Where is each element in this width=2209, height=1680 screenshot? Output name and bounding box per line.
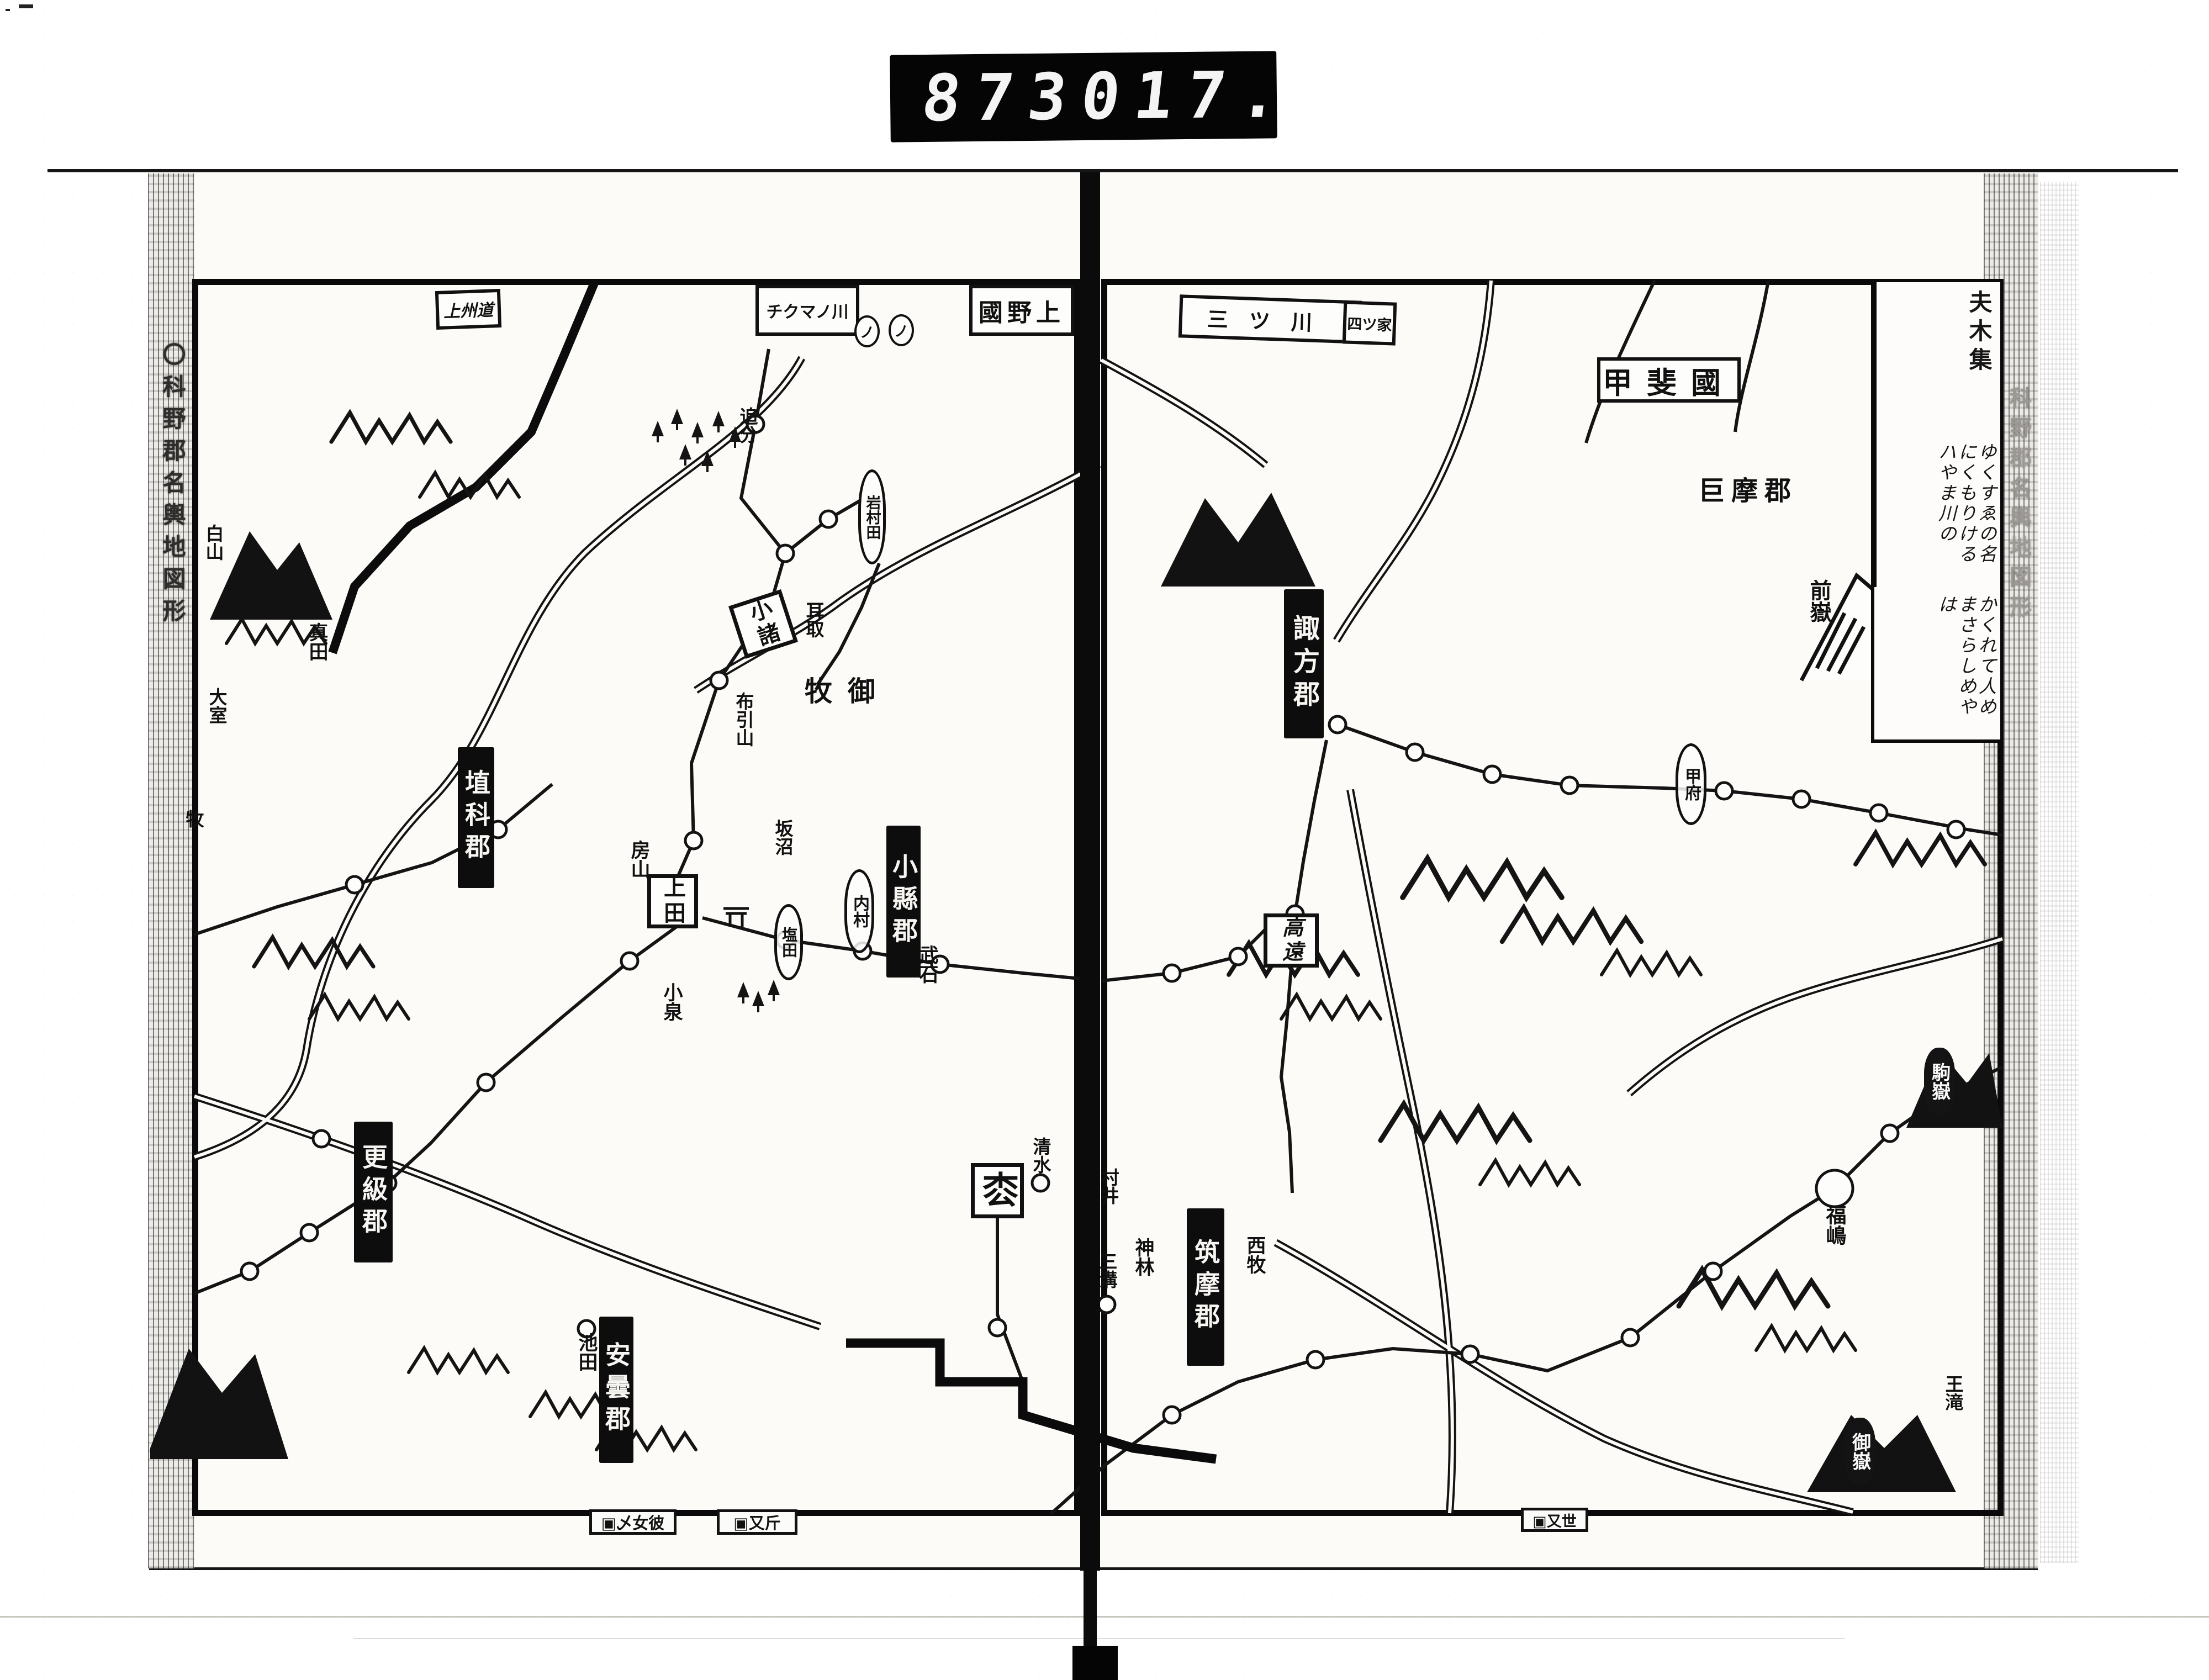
- map-label: 小泉: [660, 971, 683, 1033]
- map-label: 小諸: [728, 589, 798, 659]
- map-label: 上州道: [435, 289, 501, 330]
- map-label: 牧: [182, 802, 205, 835]
- map-labels: 埴科郡更級郡安曇郡小縣郡筑摩郡諏方郡上田小諸枩高遠甲斐國國野上チクマノ川三ツ川四…: [0, 0, 2209, 1680]
- poem-line-1: ゆくすゑの名にくもりけるハやま川の: [1874, 435, 2000, 587]
- map-label: 白山: [202, 513, 225, 572]
- map-label: 更級郡: [354, 1122, 393, 1262]
- map-label: ノ: [854, 315, 880, 347]
- map-label: 國野上: [969, 285, 1074, 336]
- map-label: ▣乄女彼: [589, 1509, 677, 1535]
- map-label: 枩: [971, 1163, 1024, 1218]
- poem-column: 夫木集 ゆくすゑの名にくもりけるハやま川の かくれて人めまさらしめやは: [1871, 279, 2004, 743]
- map-label: 清水: [1029, 1127, 1052, 1184]
- map-label: 耳取: [802, 590, 825, 649]
- map-label: 筑摩郡: [1187, 1208, 1224, 1366]
- binding-gutter: [1080, 172, 1100, 1571]
- edge-title-left: 〇科野郡名輿地図形: [156, 342, 189, 631]
- map-label: 四ツ家: [1343, 300, 1397, 345]
- map-label: 布引山: [732, 677, 755, 761]
- map-label: 甲斐國: [1597, 357, 1741, 403]
- binding-gutter-foot: [1072, 1646, 1118, 1680]
- map-label: 武石: [916, 933, 939, 995]
- map-label: 安曇郡: [599, 1317, 633, 1463]
- map-label: 坂沼: [771, 807, 794, 868]
- map-label: 牧御: [798, 672, 897, 706]
- map-label: 神林: [1132, 1227, 1155, 1287]
- map-label: 埴科郡: [458, 747, 494, 888]
- map-label: 高遠: [1264, 913, 1319, 968]
- map-label: ▣又世: [1521, 1508, 1588, 1532]
- map-label: 諏方郡: [1284, 589, 1324, 738]
- map-label: 王滝: [1941, 1364, 1964, 1422]
- poem-title: 夫木集: [1874, 282, 2000, 435]
- map-label: 内村: [844, 869, 874, 953]
- map-label: 上田: [647, 874, 698, 928]
- map-label: 甲府: [1676, 743, 1706, 825]
- map-label: 村井: [1097, 1158, 1120, 1215]
- map-label: 福嶋: [1822, 1192, 1846, 1258]
- map-label: 西牧: [1243, 1224, 1266, 1285]
- poem-line-2: かくれて人めまさらしめやは: [1874, 587, 2000, 739]
- map-label: 大室: [205, 676, 228, 736]
- map-label: 房山: [627, 828, 651, 890]
- map-label: チクマノ川: [755, 285, 859, 336]
- edge-title-right: 科野郡名輿地図形: [2002, 387, 2034, 625]
- map-label: 真田: [305, 611, 329, 672]
- binding-gutter-tail: [1084, 1570, 1097, 1650]
- map-label: 巨摩郡: [1694, 471, 1802, 505]
- map-label: ノ: [889, 314, 914, 346]
- scanned-map-photo: 873 017.: [0, 0, 2209, 1680]
- map-label: 塩田: [774, 904, 803, 980]
- map-label: 三ツ川: [1179, 294, 1362, 344]
- map-label: ▣又斤: [717, 1509, 797, 1535]
- map-label: 追分: [736, 395, 759, 455]
- map-label: 駒嶽: [1924, 1048, 1955, 1115]
- map-label: 御嶽: [1845, 1418, 1875, 1485]
- map-label: 岩村田: [858, 469, 886, 564]
- map-label: 前嶽: [1806, 568, 1831, 633]
- map-label: 池田: [575, 1323, 598, 1381]
